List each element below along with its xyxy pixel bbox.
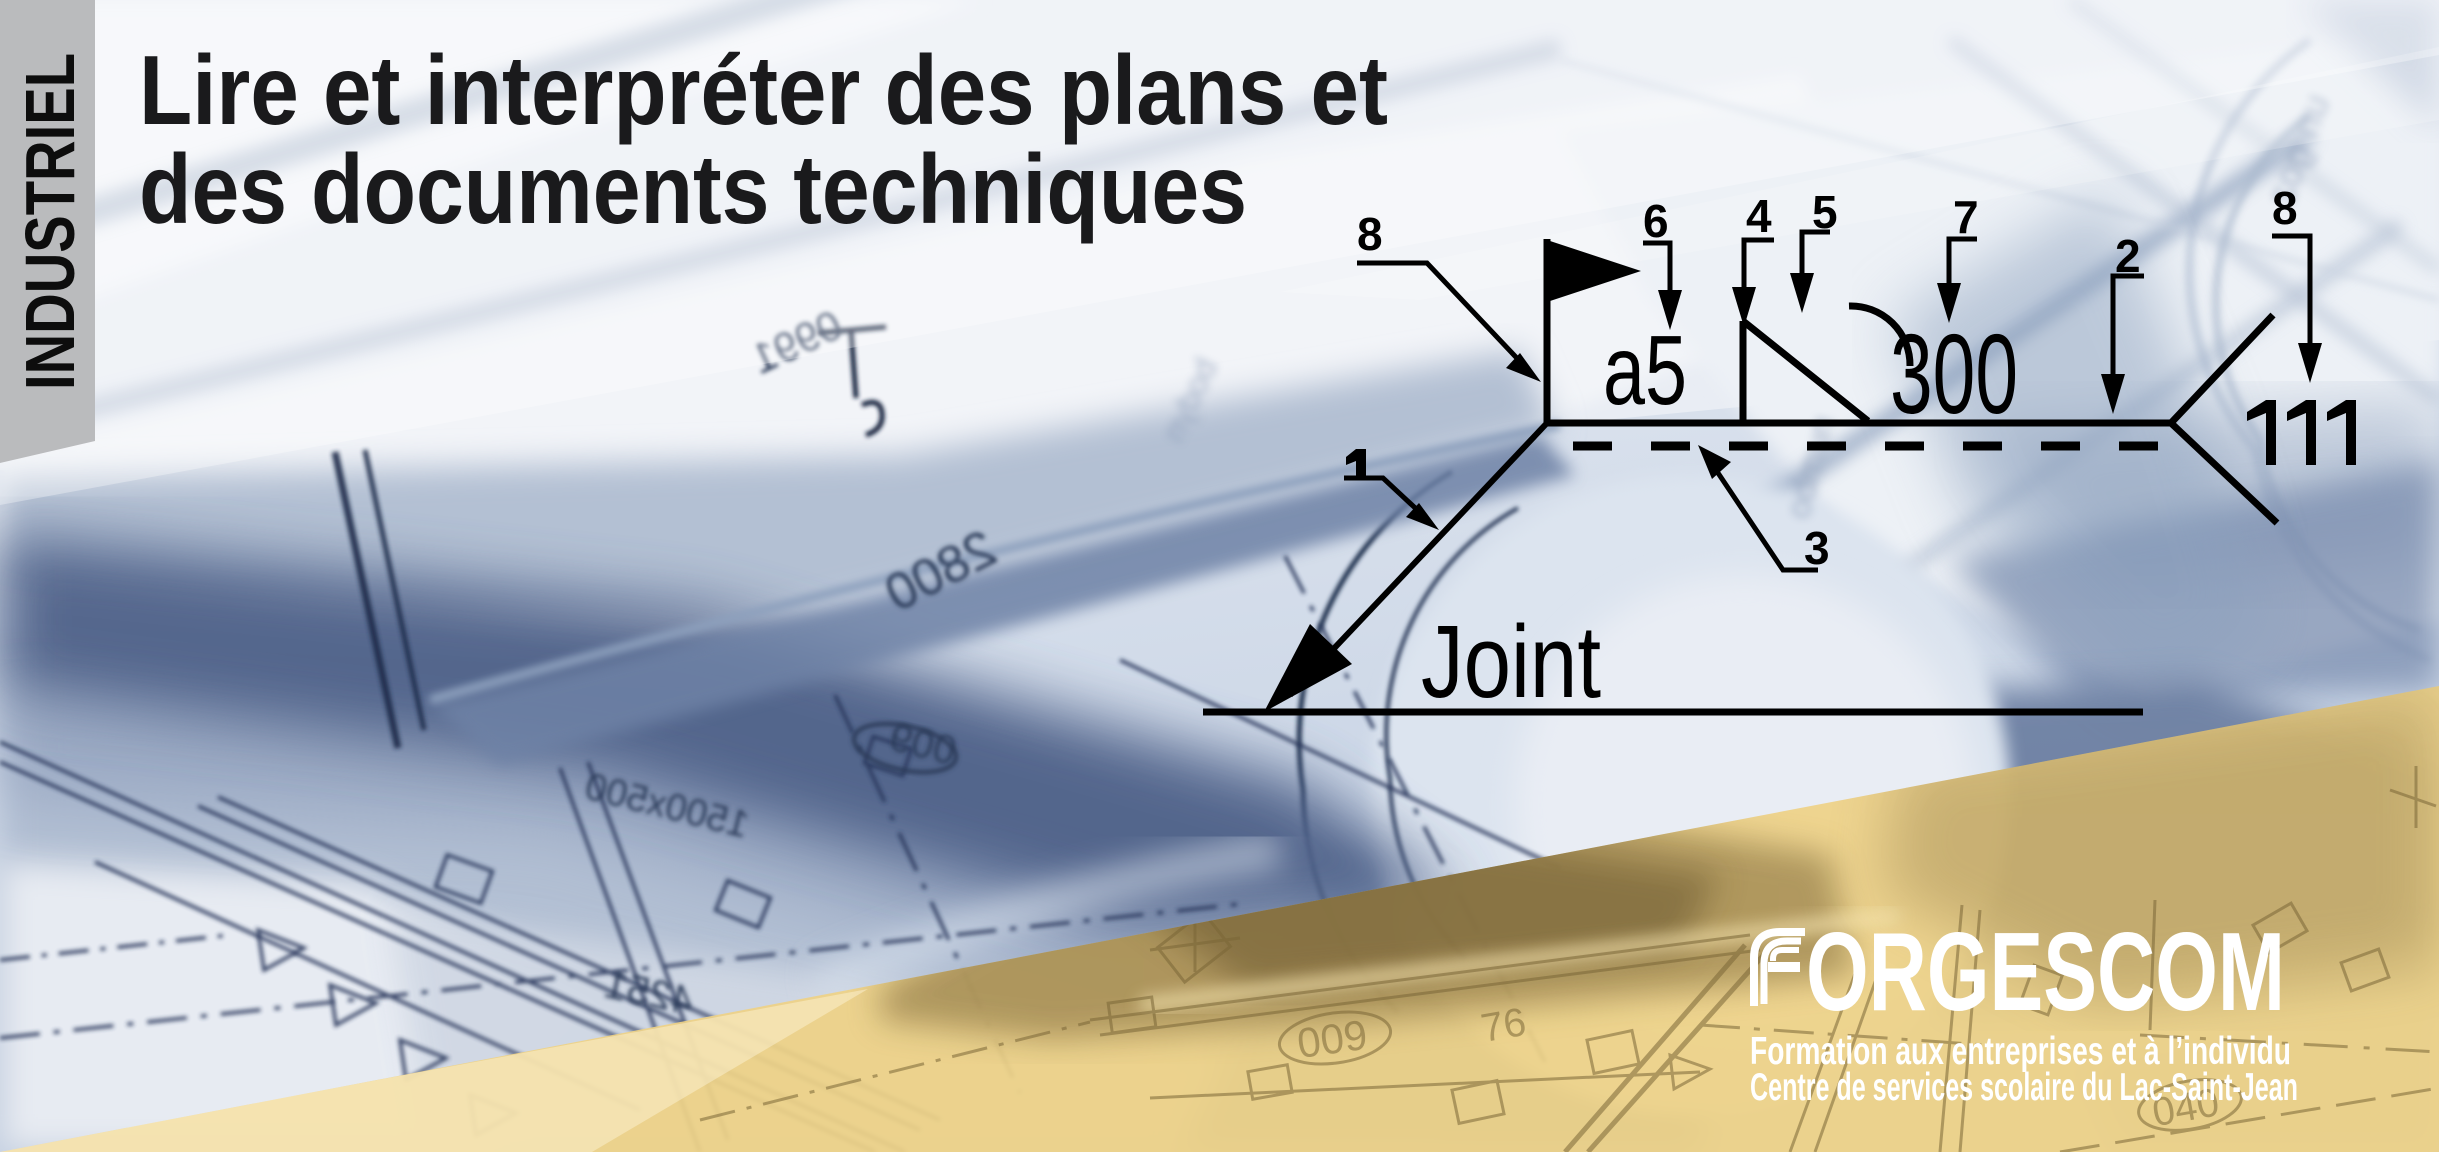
svg-text:4: 4	[1746, 190, 1772, 242]
svg-text:009: 009	[1294, 1011, 1370, 1067]
svg-text:Centre de services scolaire du: Centre de services scolaire du Lac-Saint…	[1750, 1066, 2298, 1109]
svg-text:300: 300	[1890, 311, 2018, 437]
svg-text:7: 7	[1953, 191, 1979, 243]
svg-text:8: 8	[2272, 182, 2298, 234]
svg-text:des documents techniques: des documents techniques	[139, 134, 1247, 244]
svg-text:3: 3	[1804, 522, 1830, 574]
svg-text:INDUSTRIEL: INDUSTRIEL	[11, 53, 89, 390]
svg-text:8: 8	[1357, 208, 1383, 260]
svg-text:76: 76	[1478, 1000, 1529, 1051]
svg-text:6: 6	[1643, 195, 1669, 247]
svg-text:a5: a5	[1603, 315, 1687, 425]
svg-text:Joint: Joint	[1421, 604, 1601, 719]
svg-text:Lire et interpréter des plans: Lire et interpréter des plans et	[139, 35, 1388, 145]
svg-text:ORGESCOM: ORGESCOM	[1806, 910, 2285, 1034]
